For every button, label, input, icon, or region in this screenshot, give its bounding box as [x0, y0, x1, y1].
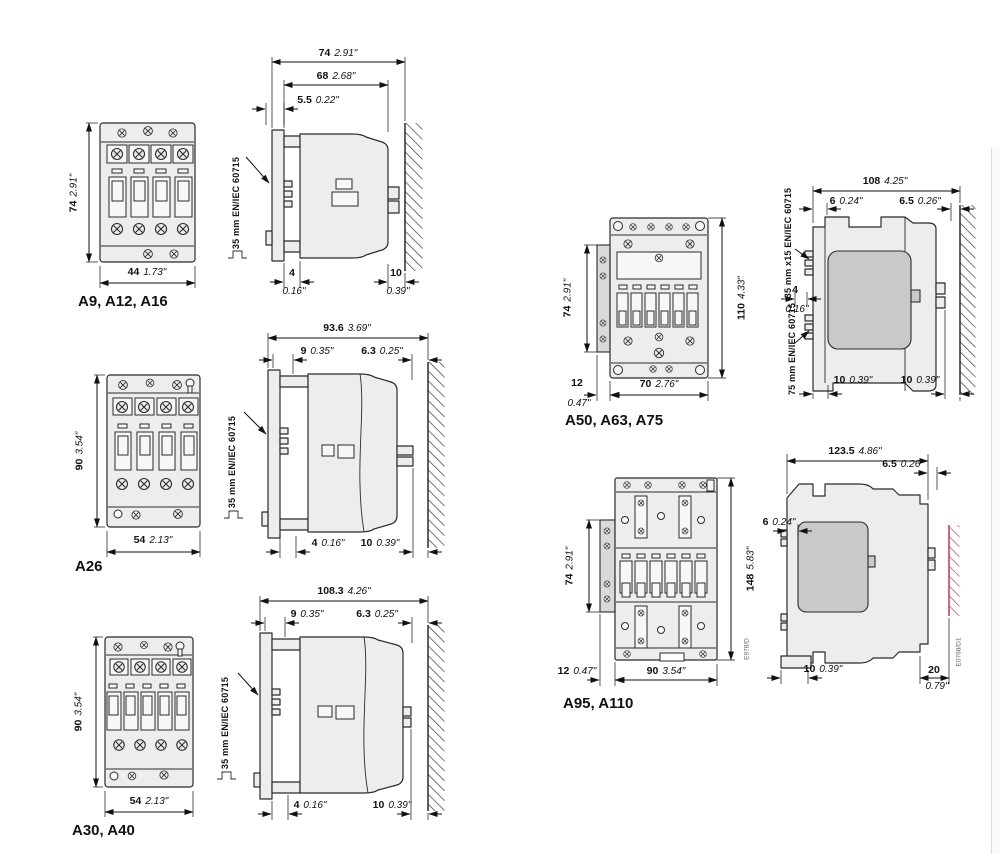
- dim-mm: 6: [830, 195, 836, 207]
- dim-mm: 6: [763, 516, 769, 528]
- dim-in: 2.91": [565, 547, 576, 570]
- a95-d-front-dim: 60.24": [763, 517, 796, 528]
- dim-in: 1.73": [143, 267, 166, 278]
- a30-front-width-dim: 542.13": [130, 796, 169, 807]
- dim-mm: 93.6: [323, 322, 343, 334]
- dim-mm: 4: [312, 537, 318, 549]
- dim-mm: 68: [317, 70, 329, 82]
- a50-din-rail-bottom-label: 75 mm EN/IEC 60715: [787, 303, 797, 395]
- dim-in: 5.83": [746, 547, 757, 570]
- dim-in: 0.24": [772, 517, 795, 528]
- a9-side-body-dim: 682.68": [317, 71, 356, 82]
- dim-in: 2.91": [334, 48, 357, 59]
- a26-wall-hatch: [428, 362, 445, 548]
- a95-strip-height-dim: 742.91": [565, 547, 576, 586]
- a30-drawing: [60, 585, 500, 854]
- a95-drawing: [555, 430, 1000, 854]
- dim-in: 0.39": [376, 538, 399, 549]
- a50-d1-dim: 60.24": [830, 196, 863, 207]
- dim-in: 0.47": [567, 398, 590, 409]
- a50-front-view: [597, 218, 708, 378]
- a50-front-height-dim: 1104.33": [737, 276, 748, 320]
- dim-mm: 6.5: [882, 458, 897, 470]
- a9-drawing: [60, 35, 490, 320]
- a30-side-view: [254, 633, 411, 799]
- dim-in: 4.26": [348, 586, 371, 597]
- dim-mm: 12: [558, 665, 570, 677]
- dim-in: 0.35": [310, 346, 333, 357]
- a50-title: A50, A63, A75: [565, 412, 663, 429]
- dimension-drawing-page: 742.91" 441.73" 742.91" 682.68" 5.50.22"…: [0, 0, 1000, 854]
- a30-d1-dim: 90.35": [291, 609, 324, 620]
- dim-mm: 5.5: [297, 94, 312, 106]
- a95-gap-floor-dim: 100.39": [804, 664, 843, 675]
- dim-in: 0.26": [901, 459, 924, 470]
- page-edge: [991, 148, 1000, 854]
- dim-in: 2.76": [655, 379, 678, 390]
- a30-title: A30, A40: [72, 822, 135, 839]
- a95-side-view: [781, 484, 935, 668]
- a30-d2-dim: 6.30.25": [356, 609, 398, 620]
- a9-side-total-dim: 742.91": [319, 48, 358, 59]
- dim-in: 0.16": [785, 304, 808, 315]
- dim-mm: 4: [289, 267, 295, 279]
- dim-in: 3.54": [74, 693, 85, 716]
- dim-in: 0.26": [918, 196, 941, 207]
- dim-in: 0.35": [300, 609, 323, 620]
- dim-in: 0.25": [375, 609, 398, 620]
- dim-mm: 108.3: [317, 585, 343, 597]
- dim-mm: 10: [373, 799, 385, 811]
- dim-mm: 90: [73, 720, 85, 732]
- a50-strip-width-in: 0.47": [563, 398, 590, 409]
- a9-side-front-dim: 5.50.22": [297, 95, 339, 106]
- a50-front-width-dim: 702.76": [640, 379, 679, 390]
- dim-in: 0.16": [303, 800, 326, 811]
- dim-mm: 90: [74, 459, 86, 471]
- a30-din-rail-label: 35 mm EN/IEC 60715: [220, 677, 230, 769]
- dim-mm: 9: [291, 608, 297, 620]
- dim-in: 0.16": [282, 286, 305, 297]
- dim-in: 2.91": [69, 174, 80, 197]
- dim-in: 2.91": [563, 279, 574, 302]
- dim-in: 3.69": [348, 323, 371, 334]
- dim-mm: 110: [736, 303, 748, 320]
- a9-front-view: [100, 123, 195, 262]
- dim-mm: 10: [901, 374, 913, 386]
- a9-title: A9, A12, A16: [78, 293, 168, 310]
- a9-gap-wall-in: 0.39": [382, 286, 409, 297]
- a30-din-rail-symbol: [217, 772, 236, 779]
- a95-side-total-dim: 123.54.86": [828, 446, 881, 457]
- a26-drawing: [60, 320, 490, 585]
- a50-gap2-dim: 100.39": [901, 375, 940, 386]
- a95-d-top-dim: 6.50.26": [882, 459, 924, 470]
- dim-mm: 10: [804, 663, 816, 675]
- a95-strip-width-dim: 120.47": [558, 666, 597, 677]
- dim-mm: 12: [571, 377, 583, 389]
- section-a50-a63-a75: 742.91" 1104.33" 12 0.47" 702.76" 1084.2…: [555, 165, 1000, 430]
- dim-mm: 74: [562, 306, 574, 318]
- section-a30-a40: 903.54" 542.13" 108.34.26" 90.35" 6.30.2…: [60, 585, 500, 854]
- a95-front-view: [600, 478, 717, 661]
- a9-front-width-dim: 441.73": [128, 267, 167, 278]
- a9-gap-front-mm: 4: [289, 268, 295, 279]
- dim-mm: 70: [640, 378, 652, 390]
- dim-mm: 74: [68, 201, 80, 213]
- a9-din-rail-label: 35 mm EN/IEC 60715: [231, 157, 241, 249]
- dim-mm: 4: [792, 284, 798, 296]
- dim-mm: 123.5: [828, 445, 854, 457]
- dim-in: 2.13": [145, 796, 168, 807]
- a95-title: A95, A110: [563, 695, 633, 712]
- dim-in: 3.54": [75, 432, 86, 455]
- a50-mid-mm: 4: [792, 285, 798, 296]
- a50-mid-in: 0.16": [781, 304, 808, 315]
- dim-in: 0.47": [573, 666, 596, 677]
- a26-side-total-dim: 93.63.69": [323, 323, 370, 334]
- a95-gap-wall-in: 0.79": [921, 681, 948, 692]
- a26-din-rail-symbol: [224, 511, 243, 518]
- a30-front-height-dim: 903.54": [74, 693, 85, 732]
- dim-in: 0.22": [316, 95, 339, 106]
- a26-d2-dim: 6.30.25": [361, 346, 403, 357]
- dim-mm: 54: [130, 795, 142, 807]
- dim-mm: 148: [745, 574, 757, 592]
- dim-mm: 10: [390, 267, 402, 279]
- section-a95-a110: 742.91" 1485.83" 120.47" 903.54" E978/D …: [555, 430, 1000, 854]
- dim-mm: 74: [319, 47, 331, 59]
- a50-side-total-dim: 1084.25": [863, 176, 908, 187]
- a95-front-drawing-code: E978/D: [744, 638, 751, 660]
- a30-side-total-dim: 108.34.26": [317, 586, 370, 597]
- a26-d1-dim: 90.35": [301, 346, 334, 357]
- dim-mm: 20: [928, 664, 940, 676]
- a50-gap1-dim: 100.39": [834, 375, 873, 386]
- a26-gap-front-dim: 40.16": [312, 538, 345, 549]
- dim-in: 0.16": [321, 538, 344, 549]
- a9-gap-wall-mm: 10: [390, 268, 402, 279]
- a26-front-width-dim: 542.13": [134, 535, 173, 546]
- section-a9-a12-a16: 742.91" 441.73" 742.91" 682.68" 5.50.22"…: [60, 35, 490, 320]
- a95-front-width-dim: 903.54": [647, 666, 686, 677]
- dim-mm: 74: [564, 574, 576, 586]
- dim-in: 0.25": [380, 346, 403, 357]
- a30-gap-front-dim: 40.16": [294, 800, 327, 811]
- a9-din-rail-symbol: [228, 251, 247, 258]
- dim-in: 4.86": [859, 446, 882, 457]
- dim-mm: 44: [128, 266, 140, 278]
- dim-mm: 4: [294, 799, 300, 811]
- dim-in: 0.39": [849, 375, 872, 386]
- dim-mm: 9: [301, 345, 307, 357]
- a50-strip-height-dim: 742.91": [563, 279, 574, 318]
- a9-gap-front-in: 0.16": [278, 286, 305, 297]
- a26-title: A26: [75, 558, 103, 575]
- dim-in: 0.39": [388, 800, 411, 811]
- dim-in: 4.25": [884, 176, 907, 187]
- a26-front-view: [107, 375, 200, 527]
- dim-in: 0.79": [925, 681, 948, 692]
- a9-side-view: [266, 130, 399, 261]
- a50-strip-width-mm: 12: [571, 378, 583, 389]
- dim-mm: 6.3: [361, 345, 376, 357]
- a50-wall-hatch: [960, 205, 976, 395]
- dim-mm: 6.3: [356, 608, 371, 620]
- a50-din-rail-top-label: 35 mm x15 EN/IEC 60715: [783, 188, 793, 298]
- dim-in: 0.24": [839, 196, 862, 207]
- dim-mm: 54: [134, 534, 146, 546]
- a26-side-view: [262, 370, 413, 538]
- a50-d2-dim: 6.50.26": [899, 196, 941, 207]
- dim-mm: 6.5: [899, 195, 914, 207]
- dim-mm: 90: [647, 665, 659, 677]
- a9-wall-hatch: [405, 123, 423, 271]
- a30-wall-hatch: [428, 625, 445, 811]
- dim-in: 0.39": [916, 375, 939, 386]
- a30-front-view: [105, 637, 193, 787]
- dim-mm: 10: [834, 374, 846, 386]
- a30-gap-wall-dim: 100.39": [373, 800, 412, 811]
- dim-mm: 10: [361, 537, 373, 549]
- dim-in: 0.39": [386, 286, 409, 297]
- a9-front-height-dim: 742.91": [69, 174, 80, 213]
- a26-front-height-dim: 903.54": [75, 432, 86, 471]
- dim-in: 3.54": [662, 666, 685, 677]
- dim-in: 0.39": [819, 664, 842, 675]
- dim-in: 2.68": [332, 71, 355, 82]
- a50-side-view: [805, 217, 945, 391]
- section-a26: 903.54" 542.13" 93.63.69" 90.35" 6.30.25…: [60, 320, 490, 585]
- dim-in: 4.33": [737, 276, 748, 299]
- a26-din-rail-label: 35 mm EN/IEC 60715: [227, 416, 237, 508]
- a95-front-height-dim: 1485.83": [746, 547, 757, 592]
- a26-gap-wall-dim: 100.39": [361, 538, 400, 549]
- a95-side-drawing-code: E0768/D1: [956, 638, 963, 667]
- dim-in: 2.13": [149, 535, 172, 546]
- a95-gap-wall-mm: 20: [928, 665, 940, 676]
- dim-mm: 108: [863, 175, 881, 187]
